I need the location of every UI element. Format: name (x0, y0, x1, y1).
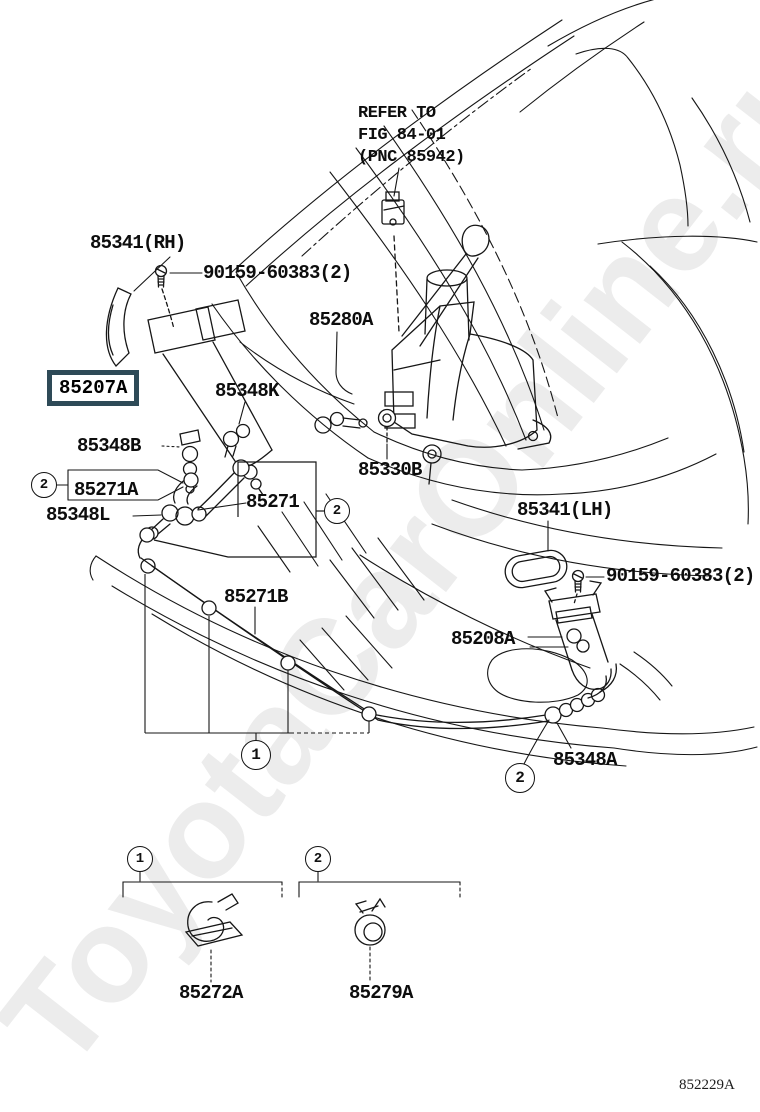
refer-note-line3: (PNC 85942) (358, 147, 465, 169)
part-label-90159-top[interactable]: 90159-60383(2) (203, 263, 351, 283)
part-label-85348a[interactable]: 85348A (553, 750, 617, 770)
fitting-85348K (224, 432, 239, 447)
refer-note: REFER TO FIG 84-01 (PNC 85942) (358, 103, 465, 169)
rh-nozzle-assembly (106, 266, 367, 540)
part-label-85208a[interactable]: 85208A (451, 629, 515, 649)
refer-note-line1: REFER TO (358, 103, 465, 125)
hose-clip (362, 707, 376, 721)
hose-clip (202, 601, 216, 615)
part-label-85341-lh[interactable]: 85341(LH) (517, 500, 612, 520)
clamp-85348A (545, 707, 561, 723)
part-label-85330b[interactable]: 85330B (358, 460, 422, 480)
part-label-85280a[interactable]: 85280A (309, 310, 373, 330)
actuator-head (148, 307, 215, 353)
hose-85271 (198, 471, 236, 509)
highlighted-part-85207a[interactable]: 85207A (47, 370, 139, 406)
part-label-85207a: 85207A (59, 377, 127, 399)
part-label-85341-rh[interactable]: 85341(RH) (90, 233, 185, 253)
part-label-85272a[interactable]: 85272A (179, 983, 243, 1003)
connector-85348B (180, 430, 200, 445)
part-label-85271[interactable]: 85271 (246, 492, 299, 512)
actuator-body (163, 354, 237, 464)
part-label-85279a[interactable]: 85279A (349, 983, 413, 1003)
washer-tank-85280A (379, 192, 551, 484)
part-label-85271b[interactable]: 85271B (224, 587, 288, 607)
diagram-number: 852229A (679, 1077, 735, 1094)
clip-details-section (123, 872, 460, 982)
tee-85348L (162, 505, 178, 521)
hose-clip (281, 656, 295, 670)
lh-nozzle-assembly (503, 548, 611, 689)
callout-1-hose: 1 (241, 740, 271, 770)
nozzle-cover-rh (106, 288, 131, 366)
refer-note-line2: FIG 84-01 (358, 125, 465, 147)
part-label-85348l[interactable]: 85348L (46, 505, 110, 525)
part-label-85271a[interactable]: 85271A (74, 480, 138, 500)
callout-1-detail-key: 1 (127, 846, 153, 872)
part-label-90159-right[interactable]: 90159-60383(2) (606, 566, 754, 586)
screw-icon-right (573, 571, 584, 593)
callout-2-right: 2 (324, 498, 350, 524)
hose-85271B (141, 558, 372, 714)
nozzle-cover-lh (503, 548, 570, 590)
callout-2-clamp: 2 (505, 763, 535, 793)
callout-2-left: 2 (31, 472, 57, 498)
callout-2-detail-key: 2 (305, 846, 331, 872)
grommet-85330B (379, 410, 396, 427)
part-label-85348k[interactable]: 85348K (215, 381, 279, 401)
pump-body-85208A (556, 620, 572, 670)
part-label-85348b[interactable]: 85348B (77, 436, 141, 456)
parts-diagram-page: ToyotaCarOnline.ru (0, 0, 760, 1112)
